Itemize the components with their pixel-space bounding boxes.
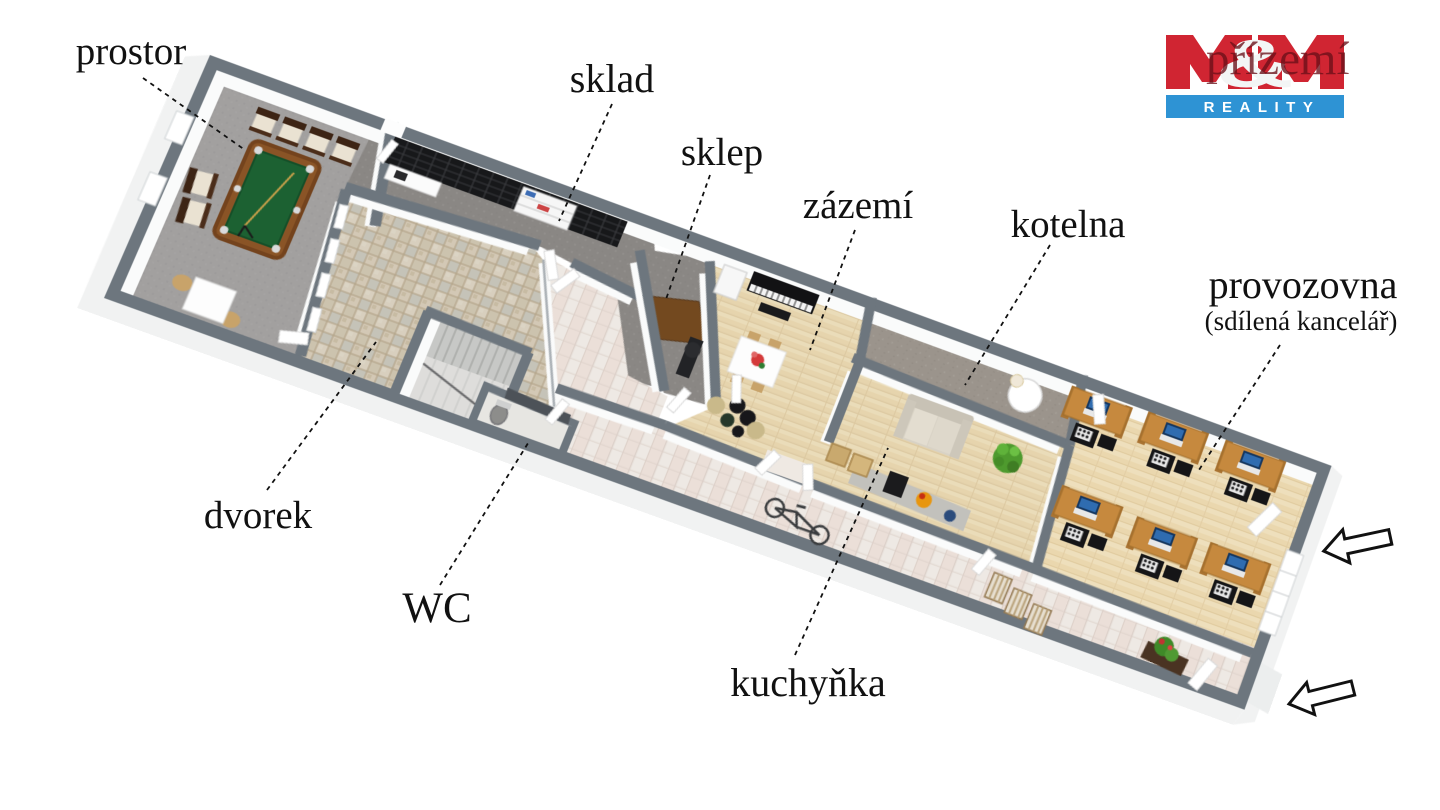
svg-text:(sdílená kancelář): (sdílená kancelář) bbox=[1205, 306, 1398, 336]
svg-text:sklep: sklep bbox=[681, 131, 763, 174]
svg-text:sklad: sklad bbox=[570, 56, 654, 101]
svg-text:kotelna: kotelna bbox=[1011, 203, 1126, 246]
svg-text:přízemí: přízemí bbox=[1206, 33, 1350, 85]
svg-text:zázemí: zázemí bbox=[803, 184, 914, 227]
svg-text:WC: WC bbox=[402, 585, 471, 632]
svg-text:REALITY: REALITY bbox=[1204, 99, 1321, 116]
svg-text:kuchyňka: kuchyňka bbox=[730, 660, 886, 705]
svg-text:dvorek: dvorek bbox=[204, 494, 313, 537]
svg-text:prostor: prostor bbox=[76, 30, 187, 73]
svg-text:provozovna: provozovna bbox=[1209, 262, 1398, 307]
